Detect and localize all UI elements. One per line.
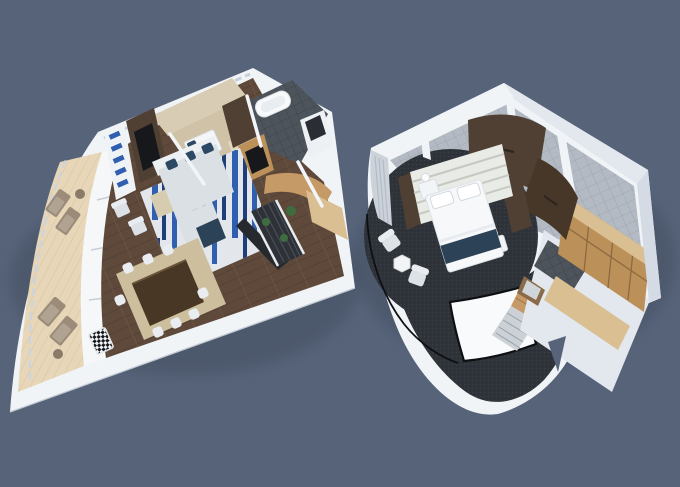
plant xyxy=(262,218,270,226)
plant xyxy=(280,234,288,242)
deck-side-table xyxy=(53,349,63,359)
floorplan-render xyxy=(0,0,680,487)
plant xyxy=(286,206,296,216)
hexagon-table xyxy=(394,255,410,272)
deck-side-table xyxy=(75,189,85,199)
floorplan-screenshot xyxy=(0,0,680,487)
